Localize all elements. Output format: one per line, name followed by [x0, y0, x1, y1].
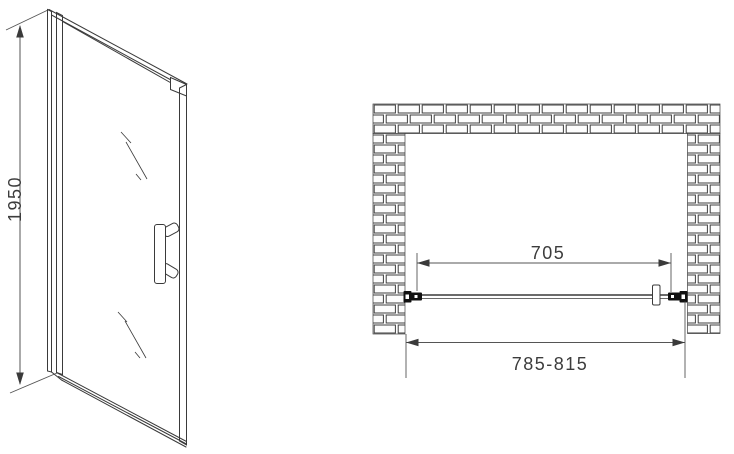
door-plan	[404, 285, 688, 305]
glass-reflection-mark	[118, 312, 127, 322]
glass-width-dimension: 705	[417, 243, 671, 292]
glass-reflection-mark	[135, 352, 140, 358]
glass-panel	[118, 132, 147, 358]
right-stile	[180, 85, 187, 446]
arrow-up-icon	[16, 25, 24, 38]
door-handle	[155, 222, 181, 284]
brick-wall-right	[688, 134, 721, 334]
extension-line-top	[6, 10, 49, 31]
arrow-right-icon	[673, 339, 686, 347]
arrow-left-icon	[406, 339, 419, 347]
height-dimension: 1950	[5, 10, 57, 394]
glass-reflection-mark	[136, 174, 141, 180]
door-handle-plan	[653, 285, 661, 305]
opening-width-label: 785-815	[512, 354, 589, 374]
technical-drawing: 1950	[0, 0, 734, 454]
wall-fitting-right	[668, 291, 688, 303]
glass-width-label: 705	[531, 243, 566, 263]
arrow-down-icon	[16, 373, 24, 386]
hinge-fitting-left	[404, 291, 423, 303]
arrow-left-icon	[417, 259, 430, 267]
bottom-rail	[52, 372, 187, 447]
brick-wall-left	[373, 134, 405, 335]
wall-profile	[48, 10, 63, 375]
brick-wall-top	[373, 104, 720, 134]
glass-reflection-mark	[126, 142, 147, 179]
rail-end-cap	[171, 78, 187, 97]
handle-bar	[155, 225, 166, 284]
glass-reflection-mark	[121, 132, 131, 143]
drawing-canvas: 1950	[0, 0, 734, 454]
door-elevation-view: 1950	[5, 10, 187, 448]
opening-width-dimension: 785-815	[406, 302, 685, 379]
top-rail	[49, 10, 187, 97]
extension-line-bottom	[10, 373, 57, 393]
arrow-right-icon	[659, 259, 672, 267]
plan-view: 705 785-815	[373, 104, 720, 378]
brick-wall	[373, 104, 720, 334]
height-dimension-label: 1950	[5, 176, 25, 222]
